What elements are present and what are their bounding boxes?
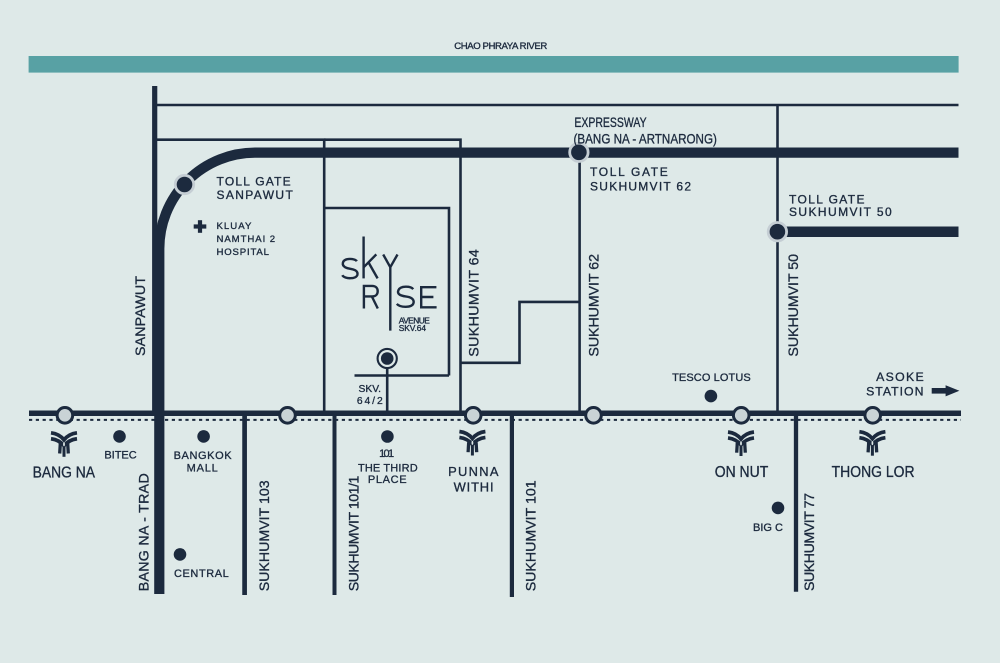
svg-text:SUKHUMVIT 101: SUKHUMVIT 101 [524, 480, 540, 591]
svg-text:SUKHUMVIT 64: SUKHUMVIT 64 [467, 249, 483, 357]
svg-text:SUKHUMVIT 77: SUKHUMVIT 77 [802, 493, 818, 591]
svg-text:SUKHUMVIT 50: SUKHUMVIT 50 [789, 205, 892, 219]
svg-text:TESCO LOTUS: TESCO LOTUS [672, 372, 751, 384]
svg-text:ON NUT: ON NUT [715, 464, 769, 481]
svg-text:SUKHUMVIT 50: SUKHUMVIT 50 [786, 254, 802, 357]
svg-text:EXPRESSWAY: EXPRESSWAY [574, 114, 647, 130]
svg-text:BANGKOK: BANGKOK [174, 450, 233, 462]
svg-text:THONG LOR: THONG LOR [832, 464, 915, 481]
svg-text:BITEC: BITEC [104, 450, 136, 462]
svg-text:(BANG NA - ARTNARONG): (BANG NA - ARTNARONG) [574, 131, 717, 147]
svg-text:HOSPITAL: HOSPITAL [217, 247, 270, 258]
svg-text:TOLL GATE: TOLL GATE [590, 165, 668, 179]
svg-text:SUKHUMVIT 62: SUKHUMVIT 62 [590, 180, 691, 194]
svg-text:SANPAWUT: SANPAWUT [133, 276, 149, 356]
svg-text:CHAO PHRAYA RIVER: CHAO PHRAYA RIVER [454, 41, 547, 52]
svg-text:ASOKE: ASOKE [876, 370, 924, 384]
svg-text:SKV.64: SKV.64 [399, 323, 427, 333]
svg-text:CENTRAL: CENTRAL [174, 568, 229, 580]
svg-text:KLUAY: KLUAY [217, 221, 252, 232]
svg-text:TOLL GATE: TOLL GATE [217, 175, 291, 189]
svg-text:64/2: 64/2 [357, 396, 383, 407]
svg-text:SUKHUMVIT 103: SUKHUMVIT 103 [257, 480, 273, 591]
svg-text:STATION: STATION [866, 384, 923, 398]
svg-text:THE THIRD: THE THIRD [358, 462, 418, 474]
svg-text:BANG NA - TRAD: BANG NA - TRAD [137, 473, 153, 591]
svg-text:NAMTHAI 2: NAMTHAI 2 [217, 234, 276, 245]
svg-text:SANPAWUT: SANPAWUT [217, 188, 294, 202]
svg-text:PLACE: PLACE [368, 474, 407, 486]
svg-text:101: 101 [379, 448, 394, 460]
svg-text:WITHI: WITHI [454, 480, 494, 495]
svg-text:MALL: MALL [187, 462, 218, 474]
svg-text:BIG C: BIG C [753, 522, 783, 534]
svg-text:SUKHUMVIT 101/1: SUKHUMVIT 101/1 [347, 476, 363, 592]
svg-text:BANG NA: BANG NA [33, 465, 96, 482]
svg-text:SKV.: SKV. [359, 384, 382, 395]
svg-text:SUKHUMVIT 62: SUKHUMVIT 62 [587, 254, 603, 357]
svg-text:PUNNA: PUNNA [448, 464, 499, 479]
